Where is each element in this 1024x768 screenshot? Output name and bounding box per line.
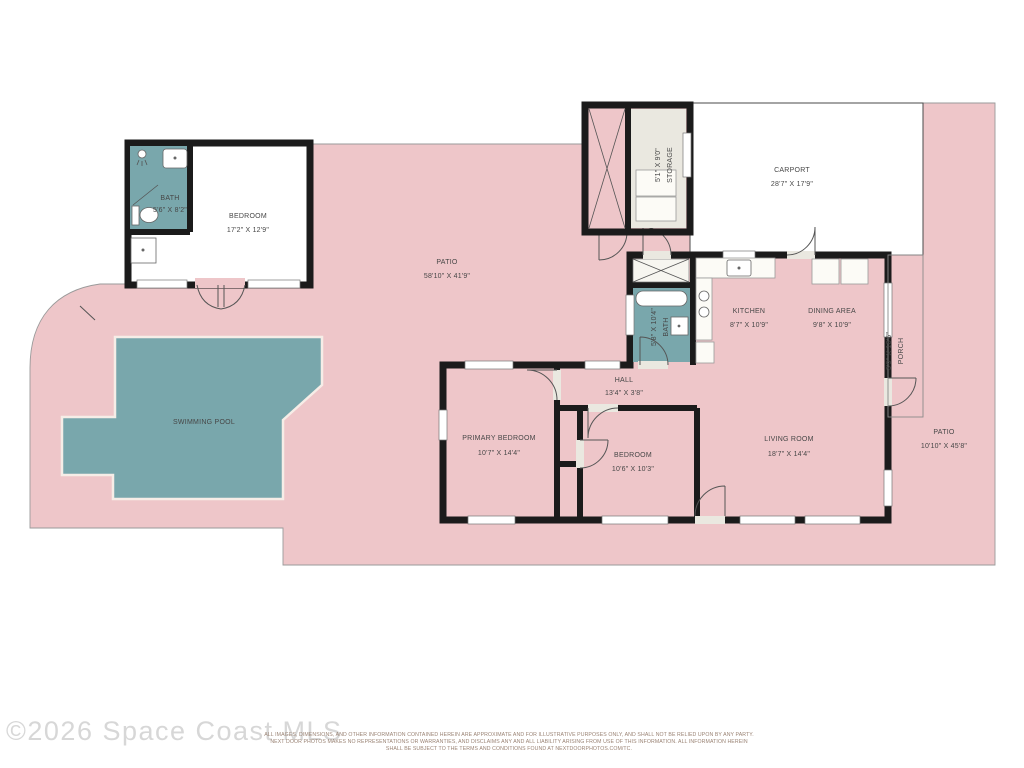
- room-label-patio-main: PATIO: [436, 259, 458, 266]
- floorplan-canvas: BATH 5'6" X 8'2" BEDROOM 17'2" X 12'9" P…: [0, 0, 1024, 768]
- shower-head: [138, 150, 146, 158]
- disclaimer-line1: ALL IMAGES, DIMENSIONS, AND OTHER INFORM…: [264, 732, 754, 738]
- disclaimer: ALL IMAGES, DIMENSIONS, AND OTHER INFORM…: [264, 732, 754, 752]
- room-label-patio-right: PATIO: [933, 429, 955, 436]
- room-label-dining: DINING AREA: [808, 308, 856, 315]
- room-dims-patio-right: 10'10" X 45'8": [921, 443, 968, 450]
- bathtub: [636, 291, 687, 306]
- french-door-opening: [195, 278, 245, 288]
- room-dims-bedroom1: 17'2" X 12'9": [227, 227, 269, 234]
- room-label-storage: STORAGE: [667, 147, 674, 183]
- disclaimer-line2: NEXT DOOR PHOTOS MAKES NO REPRESENTATION…: [270, 739, 748, 745]
- room-label-hall: HALL: [615, 377, 634, 384]
- room-dims-dining: 9'8" X 10'9": [813, 322, 851, 329]
- disclaimer-line3: SHALL BE SUBJECT TO THE TERMS AND CONDIT…: [386, 746, 632, 752]
- room-label-carport: CARPORT: [774, 167, 810, 174]
- room-dims-bedroom2: 10'6" X 10'3": [612, 466, 654, 473]
- room-label-bedroom2: BEDROOM: [614, 452, 652, 459]
- room-dims-patio-main: 58'10" X 41'9": [424, 273, 471, 280]
- floorplan-page: BATH 5'6" X 8'2" BEDROOM 17'2" X 12'9" P…: [0, 0, 1024, 768]
- cooktop-burner: [699, 291, 709, 301]
- room-dims-carport: 28'7" X 17'9": [771, 181, 813, 188]
- room-dims-kitchen: 8'7" X 10'9": [730, 322, 768, 329]
- kitchen-sink-drain: [738, 267, 741, 270]
- room-label-primary: PRIMARY BEDROOM: [462, 435, 536, 442]
- refrigerator: [696, 342, 714, 363]
- room-dims-bath2: 5'8" X 10'4": [651, 308, 658, 346]
- room-label-bedroom1: BEDROOM: [229, 213, 267, 220]
- room-label-living: LIVING ROOM: [764, 436, 813, 443]
- room-label-kitchen: KITCHEN: [733, 308, 765, 315]
- room-label-porch: PORCH: [898, 338, 905, 365]
- room-dims-bath1: 5'6" X 8'2": [153, 207, 187, 214]
- toilet-tank: [132, 206, 139, 225]
- room-dims-storage: 5'1" X 9'0": [655, 148, 662, 182]
- cooktop-burner: [699, 307, 709, 317]
- room-label-pool: SWIMMING POOL: [173, 419, 235, 426]
- room-label-bath2: BATH: [663, 317, 670, 336]
- room-dims-porch: 3'9" X 16'6": [886, 332, 893, 370]
- room-label-bath1: BATH: [160, 195, 179, 202]
- room-dims-primary: 10'7" X 14'4": [478, 450, 520, 457]
- carport-area: [690, 103, 923, 255]
- room-dims-hall: 13'4" X 3'8": [605, 390, 643, 397]
- room-dims-living: 18'7" X 14'4": [768, 451, 810, 458]
- storage-window: [683, 133, 691, 177]
- laundry-sink-drain: [142, 249, 145, 252]
- storage-shelf: [636, 197, 676, 221]
- bath2-sink-drain: [678, 325, 681, 328]
